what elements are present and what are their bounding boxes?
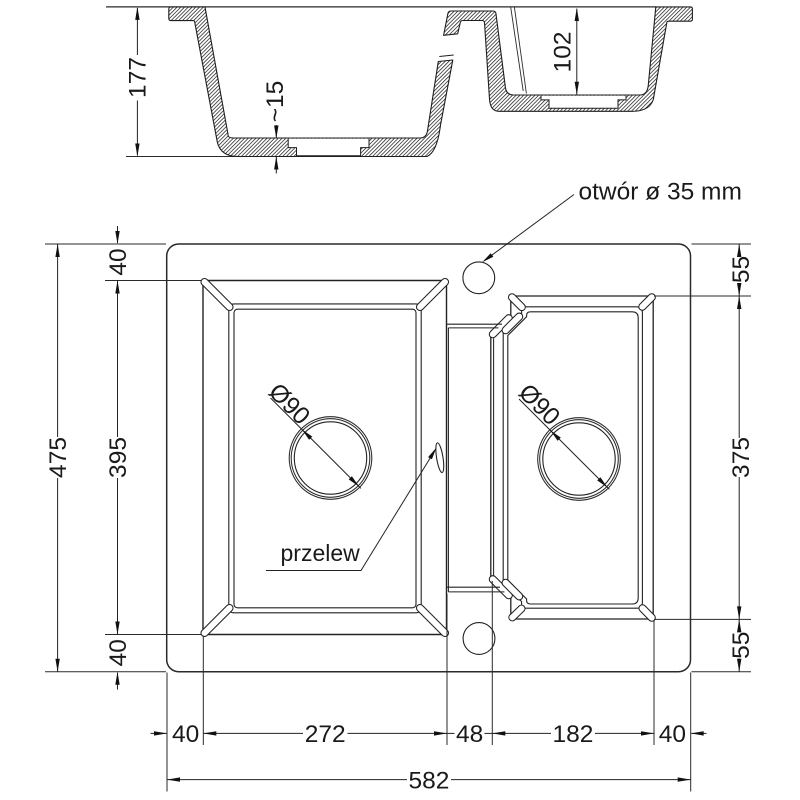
svg-text:40: 40 — [105, 248, 132, 275]
svg-text:582: 582 — [408, 767, 449, 794]
svg-text:177: 177 — [125, 57, 152, 98]
svg-text:272: 272 — [305, 721, 346, 748]
svg-text:40: 40 — [105, 639, 132, 666]
svg-text:~15: ~15 — [262, 81, 289, 123]
svg-text:40: 40 — [172, 721, 199, 748]
svg-text:55: 55 — [728, 256, 755, 283]
svg-text:475: 475 — [45, 437, 72, 478]
svg-text:przelew: przelew — [281, 540, 361, 566]
svg-text:55: 55 — [728, 632, 755, 659]
svg-text:102: 102 — [550, 32, 577, 73]
svg-text:40: 40 — [659, 721, 686, 748]
svg-text:375: 375 — [728, 437, 755, 478]
svg-text:395: 395 — [105, 437, 132, 478]
svg-text:48: 48 — [456, 721, 483, 748]
svg-text:otwór ø 35 mm: otwór ø 35 mm — [579, 179, 742, 206]
svg-text:182: 182 — [553, 721, 594, 748]
